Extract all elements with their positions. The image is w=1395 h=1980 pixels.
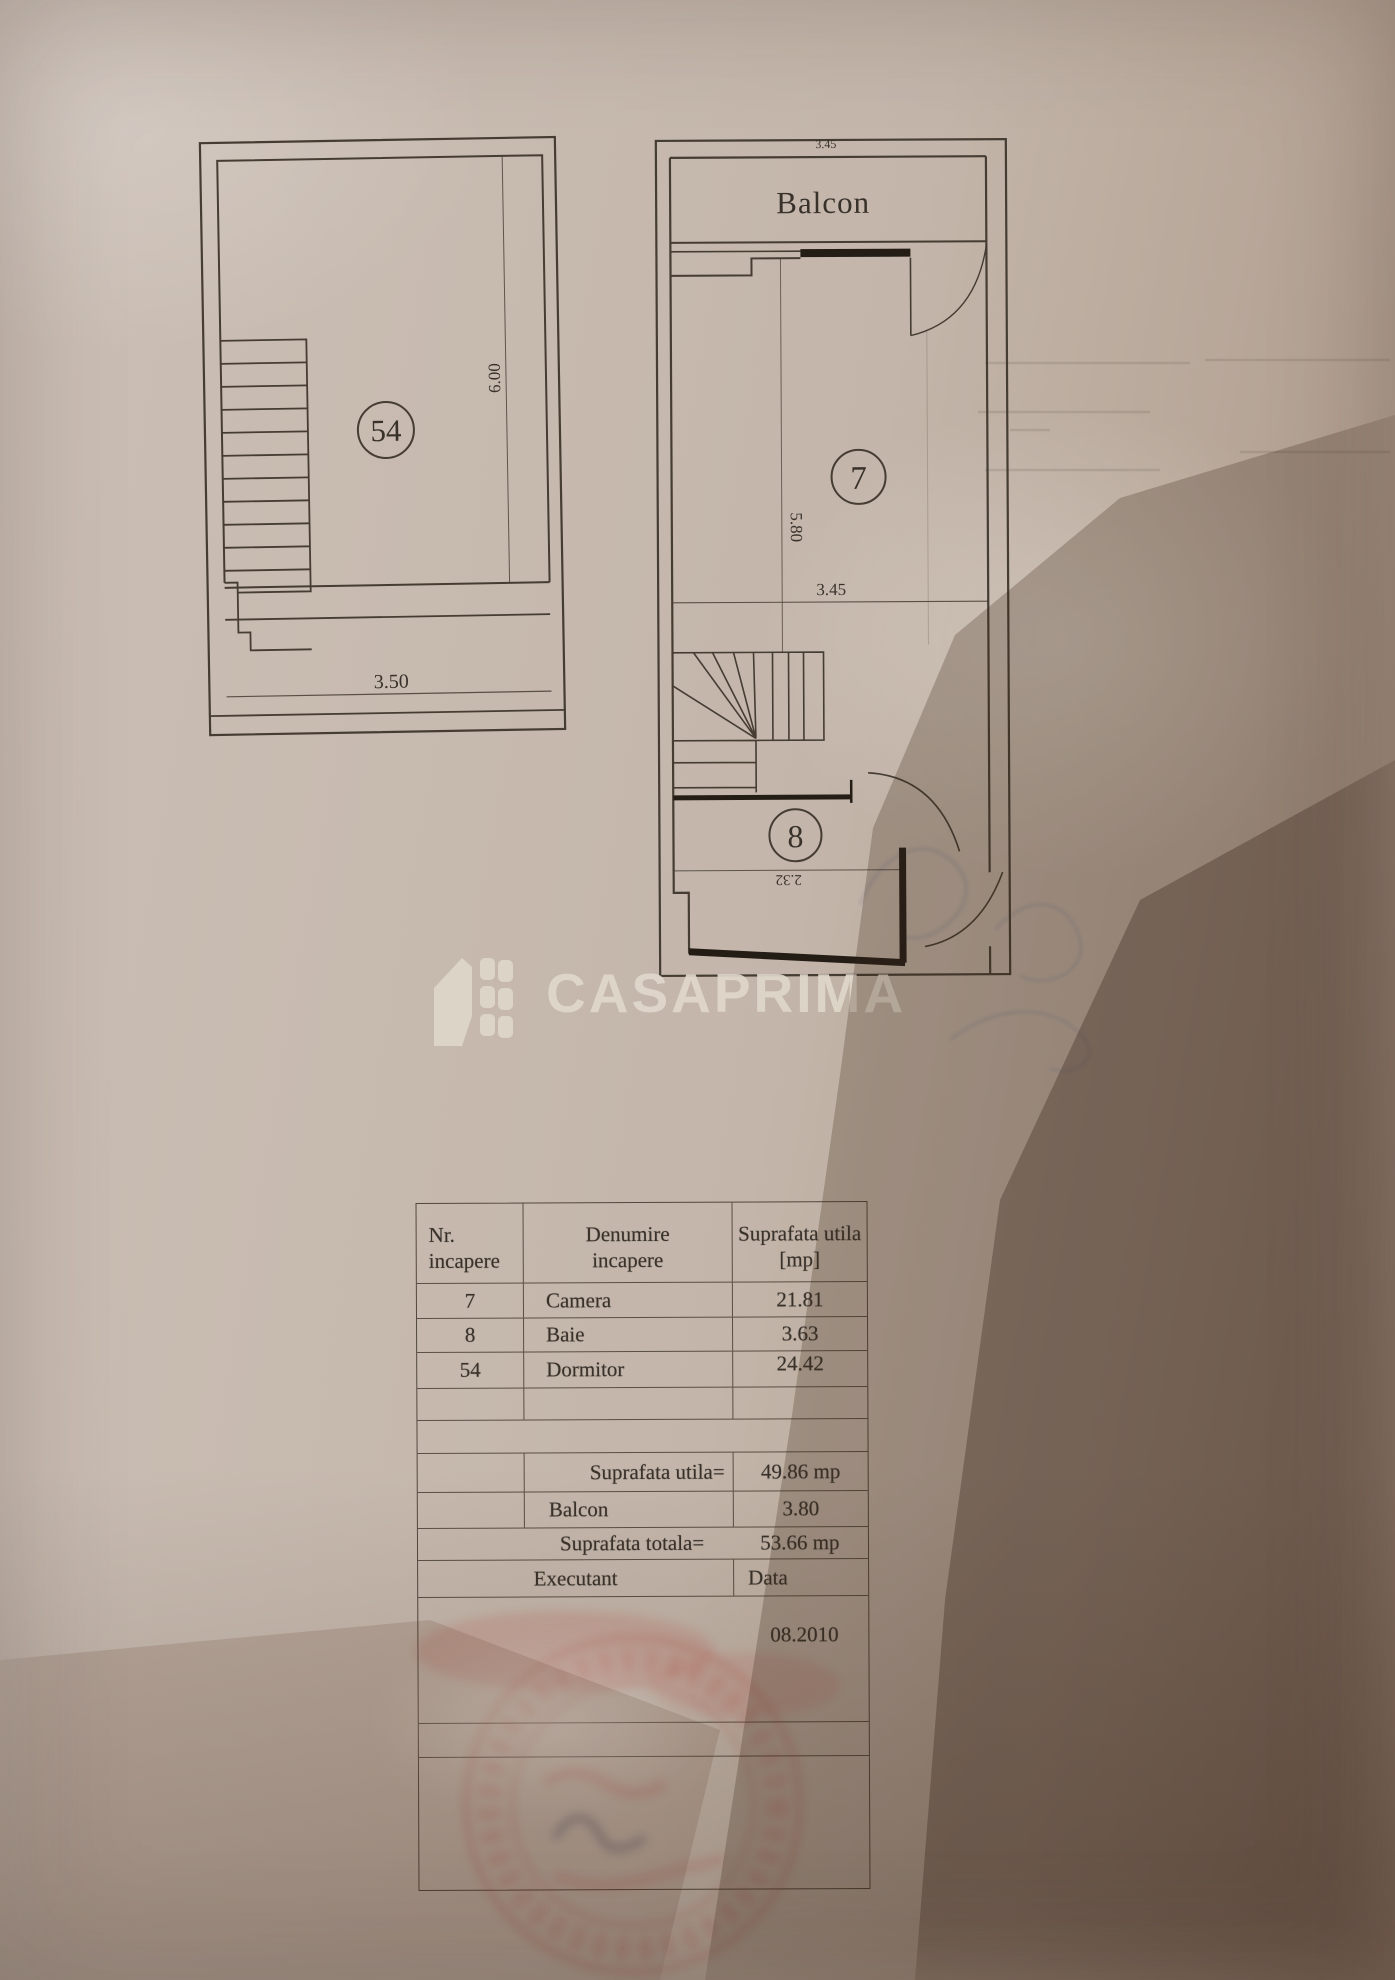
vignette-overlay	[0, 0, 1395, 1980]
scanned-floorplan-page: 54 6.00 3.50 3.45 Balcon 7	[0, 0, 1395, 1980]
